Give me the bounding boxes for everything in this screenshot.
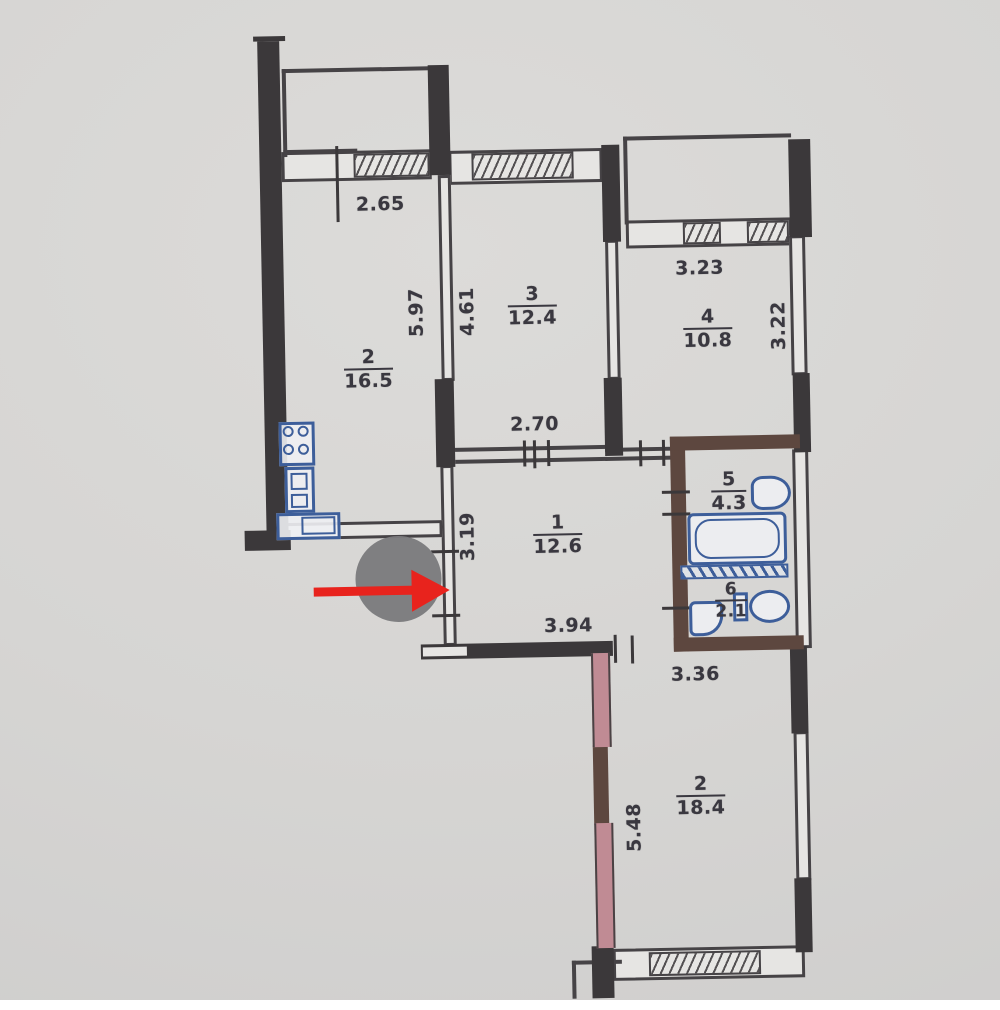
wall-right-outer-mid bbox=[792, 449, 812, 648]
wall-kitchen-room3-divider bbox=[438, 175, 455, 381]
balcony-right-outline bbox=[623, 136, 629, 224]
wall-wc-bottom bbox=[674, 635, 804, 651]
dimension-label: 2.70 bbox=[510, 413, 559, 436]
wall-block bbox=[794, 878, 812, 952]
wall-block bbox=[604, 378, 623, 456]
dimension-tick bbox=[533, 440, 537, 468]
room-label-bedroom: 2 18.4 bbox=[676, 773, 726, 819]
room-label-hallway: 1 12.6 bbox=[533, 512, 583, 558]
door-jamb-tick bbox=[432, 614, 460, 618]
wall-block bbox=[790, 646, 809, 733]
door-jamb-tick bbox=[631, 635, 635, 663]
dimension-tick bbox=[614, 635, 618, 663]
balcony-right-outline bbox=[623, 133, 791, 140]
room-area: 16.5 bbox=[344, 370, 393, 393]
wall-bathroom-top bbox=[670, 434, 800, 450]
window-balcony-right-a bbox=[683, 222, 721, 245]
room-area: 2.1 bbox=[715, 601, 747, 621]
room-area: 12.4 bbox=[508, 306, 557, 329]
wall-right-outer-upper bbox=[789, 235, 808, 375]
wall-segment bbox=[593, 745, 610, 825]
dimension-label: 3.19 bbox=[456, 512, 479, 561]
lower-balcony-outline bbox=[572, 961, 577, 999]
wall-pillar bbox=[428, 65, 451, 175]
dimension-label: 2.65 bbox=[356, 193, 405, 216]
room-number: 5 bbox=[711, 469, 747, 493]
door-jamb-tick bbox=[523, 440, 526, 466]
window-bedroom bbox=[649, 950, 761, 976]
wall-opening bbox=[423, 647, 467, 657]
floor-plan-drawing: 2 16.5 3 12.4 4 10.8 5 4.3 1 12.6 6 2.1 … bbox=[0, 0, 1000, 1010]
dimension-label: 3.36 bbox=[671, 663, 720, 686]
pink-wall-segment bbox=[591, 653, 612, 747]
wall-block bbox=[592, 946, 615, 998]
dimension-label: 4.61 bbox=[456, 287, 479, 336]
dimension-label: 5.48 bbox=[623, 803, 646, 852]
room-number: 6 bbox=[715, 580, 747, 601]
dimension-label: 5.97 bbox=[405, 288, 428, 337]
door-jamb-tick bbox=[662, 440, 665, 466]
room-area: 4.3 bbox=[711, 492, 747, 515]
balcony-outline bbox=[282, 66, 430, 73]
room-area: 10.8 bbox=[683, 329, 732, 352]
washbasin bbox=[751, 475, 792, 510]
room-label-room4: 4 10.8 bbox=[683, 306, 733, 352]
room-number: 2 bbox=[344, 347, 393, 371]
kitchen-cabinet-door bbox=[291, 494, 308, 508]
room-number: 3 bbox=[507, 283, 556, 307]
room-label-room3: 3 12.4 bbox=[507, 283, 557, 329]
room-label-kitchen: 2 16.5 bbox=[344, 347, 394, 393]
dimension-label: 3.23 bbox=[675, 257, 724, 280]
door-jamb-tick bbox=[662, 606, 690, 610]
window-kitchen bbox=[353, 152, 429, 177]
photographed-paper-background: 2 16.5 3 12.4 4 10.8 5 4.3 1 12.6 6 2.1 … bbox=[0, 0, 1000, 1000]
window-balcony-right-b bbox=[747, 220, 789, 243]
door-jamb-tick bbox=[431, 550, 459, 554]
kitchen-sink bbox=[301, 516, 335, 535]
room-label-bathroom: 5 4.3 bbox=[711, 469, 747, 514]
dimension-label: 3.94 bbox=[544, 614, 593, 637]
door-jamb-tick bbox=[662, 512, 690, 516]
door-jamb-tick bbox=[547, 440, 550, 466]
window-room3 bbox=[471, 152, 573, 181]
room-area: 12.6 bbox=[533, 535, 582, 558]
room-number: 2 bbox=[676, 773, 725, 797]
wall-room3-hall bbox=[455, 457, 607, 464]
kitchen-cabinet-door bbox=[290, 473, 307, 490]
balcony-outline bbox=[282, 69, 288, 157]
wall-bathroom-left bbox=[670, 436, 689, 651]
room-number: 4 bbox=[683, 306, 732, 330]
bath-wc-partition bbox=[680, 563, 788, 579]
room-number: 1 bbox=[533, 512, 582, 536]
bathtub-inner bbox=[694, 518, 780, 560]
wall-kitchen-hall-divider bbox=[440, 465, 456, 646]
door-jamb-tick bbox=[662, 490, 690, 494]
wall-block bbox=[435, 379, 456, 467]
wall-pillar bbox=[788, 139, 812, 237]
toilet-bowl bbox=[749, 589, 791, 623]
pink-wall-segment bbox=[594, 823, 615, 948]
dimension-label: 3.22 bbox=[767, 301, 790, 350]
wall-room3-hall bbox=[455, 445, 607, 452]
room-area: 18.4 bbox=[676, 796, 725, 819]
wall-pillar bbox=[601, 145, 621, 242]
wall-right-outer-lower bbox=[793, 731, 811, 880]
red-arrow-head-icon bbox=[411, 569, 450, 612]
door-jamb-tick bbox=[639, 440, 642, 466]
wall-room3-room4-divider bbox=[605, 240, 621, 380]
room-label-wc: 6 2.1 bbox=[715, 580, 747, 621]
